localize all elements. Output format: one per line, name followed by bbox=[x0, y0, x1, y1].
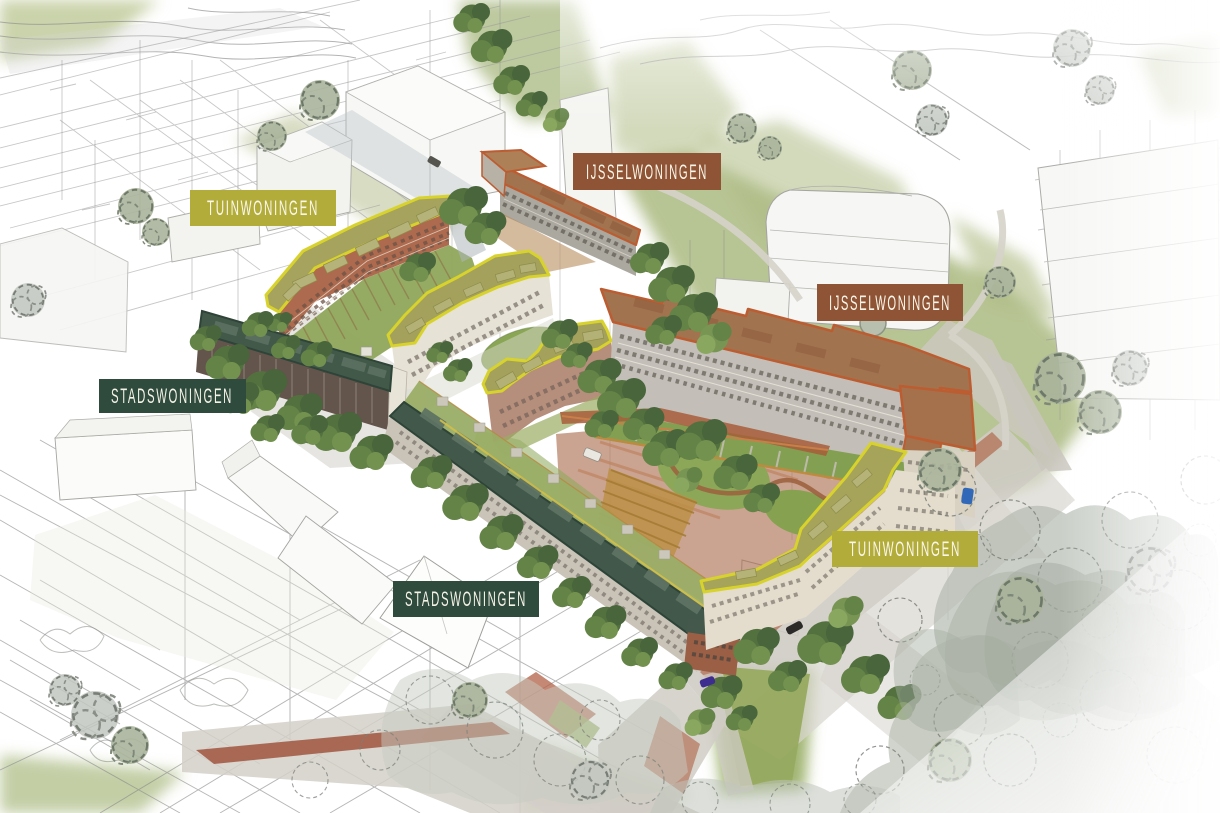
svg-text:TUINWONINGEN: TUINWONINGEN bbox=[849, 538, 961, 561]
svg-text:IJSSELWONINGEN: IJSSELWONINGEN bbox=[586, 161, 708, 184]
svg-text:TUINWONINGEN: TUINWONINGEN bbox=[207, 197, 319, 220]
svg-text:STADSWONINGEN: STADSWONINGEN bbox=[405, 588, 527, 611]
svg-text:IJSSELWONINGEN: IJSSELWONINGEN bbox=[829, 292, 951, 315]
svg-text:STADSWONINGEN: STADSWONINGEN bbox=[111, 385, 233, 408]
